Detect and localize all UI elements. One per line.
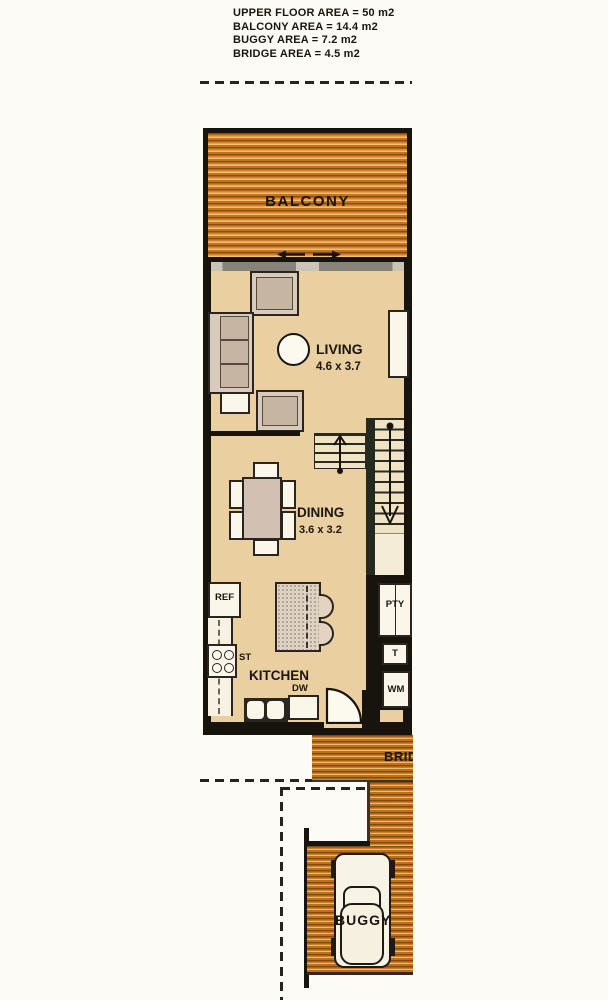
sliding-door-arrows-icon: [275, 248, 343, 261]
armchair-top: [250, 271, 299, 316]
room-bridge: BRIDGE: [312, 735, 413, 782]
dishwasher-label: DW: [292, 683, 308, 694]
armchair-bottom: [256, 390, 304, 432]
pantry-divider: [395, 585, 396, 635]
legend-line-upper-floor: UPPER FLOOR AREA = 50 m2: [233, 7, 394, 21]
balcony-label: BALCONY: [208, 193, 407, 210]
dining-chair: [229, 511, 244, 540]
burner: [224, 663, 234, 673]
bridge-label: BRIDGE: [384, 749, 413, 764]
dining-label: DINING: [297, 505, 344, 520]
sliding-door-track: [211, 262, 404, 271]
sofa-cushion: [220, 316, 249, 340]
coffee-table: [277, 333, 310, 366]
deck-strip: [367, 782, 413, 846]
burner: [212, 650, 222, 660]
door-swing-icon: [324, 686, 363, 724]
boundary-dashed-line-top: [200, 81, 412, 84]
washing-machine: WM: [382, 671, 410, 708]
sofa-cushion: [220, 364, 249, 388]
living-dimensions: 4.6 x 3.7: [316, 361, 361, 373]
burner: [224, 650, 234, 660]
buggy-court-dashed-left: [280, 787, 283, 1000]
sink: [244, 698, 288, 722]
buggy-label: BUGGY: [335, 912, 391, 928]
buggy-court-dashed-top: [281, 787, 367, 790]
toilet: T: [382, 643, 408, 665]
legend-line-bridge: BRIDGE AREA = 4.5 m2: [233, 48, 394, 62]
stove-label: ST: [239, 652, 251, 663]
media-unit: [388, 310, 409, 378]
sofa-cushion: [220, 340, 249, 364]
utility-floor-patch: [380, 710, 403, 722]
pantry-label: PTY: [380, 599, 410, 610]
stair-landing: [375, 534, 404, 575]
fridge: REF: [208, 582, 241, 618]
dining-chair: [229, 480, 244, 509]
dining-chair: [281, 480, 296, 509]
dining-chair: [281, 511, 296, 540]
pantry: PTY: [378, 583, 412, 637]
dining-dimensions: 3.6 x 3.2: [299, 524, 342, 536]
room-buggy: BUGGY: [307, 846, 413, 975]
dining-table: [242, 477, 282, 540]
upper-floor-unit: LIVING 4.6 x 3.7 DINING 3.6 x 3.2: [203, 262, 412, 735]
living-label: LIVING: [316, 341, 363, 357]
kitchen-island: [275, 582, 321, 652]
kitchen-label: KITCHEN: [249, 668, 309, 683]
fridge-label: REF: [210, 592, 239, 603]
legend-line-buggy: BUGGY AREA = 7.2 m2: [233, 34, 394, 48]
burner: [212, 663, 222, 673]
stair-up-arrow-icon: [331, 432, 349, 476]
toilet-label: T: [384, 648, 406, 659]
dining-chair: [253, 462, 279, 479]
sofa: [208, 312, 254, 394]
sink-bowl: [247, 701, 264, 719]
side-table: [220, 392, 250, 414]
floor-plan: UPPER FLOOR AREA = 50 m2 BALCONY AREA = …: [0, 0, 608, 1000]
legend-line-balcony: BALCONY AREA = 14.4 m2: [233, 21, 394, 35]
stove: [207, 644, 237, 678]
dining-chair: [253, 539, 279, 556]
island-overhang-line: [306, 586, 308, 648]
washing-machine-label: WM: [384, 684, 408, 695]
area-legend: UPPER FLOOR AREA = 50 m2 BALCONY AREA = …: [233, 7, 394, 61]
dishwasher: [288, 695, 319, 720]
nib-wall: [203, 431, 300, 436]
sink-bowl: [267, 701, 284, 719]
stair-down-arrow-icon: [379, 420, 401, 532]
boundary-dashed-line-bottom: [200, 779, 312, 782]
stair-stringer-wall: [366, 418, 375, 578]
room-balcony: BALCONY: [203, 128, 412, 262]
